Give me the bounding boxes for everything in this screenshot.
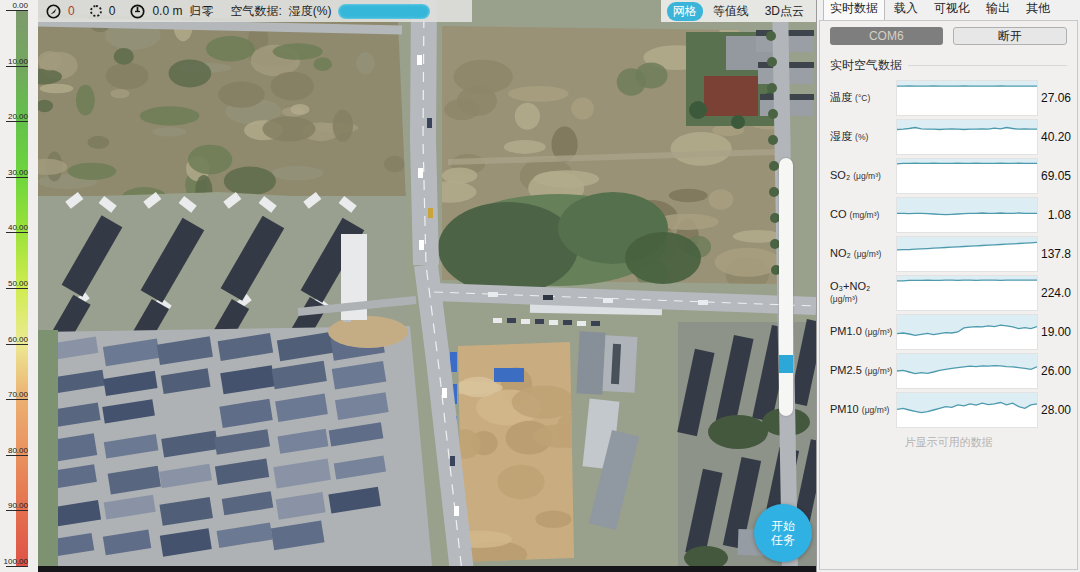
group-title: 实时空气数据: [830, 57, 902, 74]
sensor-row: O₃+NO₂ (μg/m³) 224.0: [830, 273, 1073, 312]
disconnect-button[interactable]: 断开: [953, 27, 1068, 45]
colorbar-tick: [6, 177, 28, 178]
sensor-label: NO₂ (μg/m³): [830, 247, 896, 260]
sensor-value: 1.08: [1038, 208, 1073, 222]
map-mode-tab-0[interactable]: 网格: [667, 2, 703, 21]
air-data-label: 空气数据:: [230, 3, 281, 20]
sensor-label: PM10 (μg/m³): [830, 403, 896, 416]
colorbar-tick: [6, 399, 28, 400]
com-port-button[interactable]: COM6: [830, 27, 943, 45]
sensor-label: O₃+NO₂ (μg/m³): [830, 280, 896, 305]
sensor-sparkline: [896, 158, 1038, 194]
colorbar-tick-label: 100.00: [0, 557, 28, 566]
colorbar-tick: [6, 121, 28, 122]
sensor-sparkline: [896, 197, 1038, 233]
zero-button[interactable]: 归零: [189, 3, 213, 20]
sensor-value: 19.00: [1038, 325, 1073, 339]
colorbar-tick: [6, 288, 28, 289]
sensor-row: PM10 (μg/m³) 28.00: [830, 390, 1073, 429]
sensor-value: 27.06: [1038, 91, 1073, 105]
sensor-label: PM2.5 (μg/m³): [830, 364, 896, 377]
sensor-label: 温度 (°C): [830, 91, 896, 104]
sensor-sparkline: [896, 314, 1038, 350]
sensor-value: 26.00: [1038, 364, 1073, 378]
colorbar-tick: [6, 566, 28, 567]
colorbar-tick-label: 60.00: [0, 335, 28, 344]
colorbar-tick-label: 80.00: [0, 446, 28, 455]
sensor-sparkline: [896, 80, 1038, 116]
start-task-line1: 开始: [771, 519, 795, 533]
air-data-selector[interactable]: [338, 4, 430, 19]
sensor-value: 69.05: [1038, 169, 1073, 183]
sensor-row: PM2.5 (μg/m³) 26.00: [830, 351, 1073, 390]
compass-value: 0: [68, 4, 75, 18]
altitude-slider[interactable]: [779, 158, 793, 416]
colorbar-tick-label: 10.00: [0, 57, 28, 66]
group-divider: [908, 65, 1067, 66]
colorbar-tick-label: 20.00: [0, 112, 28, 121]
altitude-gauge-icon: [130, 4, 145, 19]
map-mode-tab-1[interactable]: 等值线: [707, 2, 755, 21]
satellite-imagery: [38, 0, 816, 572]
group-header: 实时空气数据: [820, 49, 1077, 76]
colorbar-tick-label: 40.00: [0, 223, 28, 232]
colorbar-tick: [6, 10, 28, 11]
sensor-row: SO₂ (μg/m³) 69.05: [830, 156, 1073, 195]
sensor-label: 湿度 (%): [830, 130, 896, 143]
colorbar-tick-label: 30.00: [0, 168, 28, 177]
colorbar-tick-label: 50.00: [0, 279, 28, 288]
altitude-value: 0.0 m: [152, 4, 182, 18]
sensor-sparkline: [896, 119, 1038, 155]
panel-tab-3[interactable]: 输出: [979, 0, 1017, 20]
map-mode-tab-2[interactable]: 3D点云: [759, 2, 810, 21]
start-task-button[interactable]: 开始 任务: [754, 504, 812, 562]
sensor-sparkline: [896, 392, 1038, 428]
map-mode-tabs: 网格等值线3D点云: [661, 0, 816, 22]
right-panel: 实时数据载入可视化输出其他 COM6 断开 实时空气数据 温度 (°C) 27.…: [816, 0, 1080, 572]
panel-content: COM6 断开 实时空气数据 温度 (°C) 27.06 湿度 (%) 40.2…: [819, 20, 1078, 570]
panel-tabs: 实时数据载入可视化输出其他: [817, 0, 1080, 20]
panel-tab-4[interactable]: 其他: [1019, 0, 1057, 20]
sensor-row: PM1.0 (μg/m³) 19.00: [830, 312, 1073, 351]
sensor-value: 40.20: [1038, 130, 1073, 144]
sensor-label: PM1.0 (μg/m³): [830, 325, 896, 338]
sensor-row: 温度 (°C) 27.06: [830, 78, 1073, 117]
sensor-row: NO₂ (μg/m³) 137.8: [830, 234, 1073, 273]
colorbar-tick: [6, 455, 28, 456]
compass-icon: [46, 4, 61, 19]
panel-footer-note: 片显示可用的数据: [820, 435, 1077, 450]
colorbar-tick: [6, 344, 28, 345]
colorbar-tick-label: 70.00: [0, 390, 28, 399]
colorbar: 0.0010.0020.0030.0040.0050.0060.0070.008…: [0, 0, 38, 572]
sensor-value: 137.8: [1038, 247, 1073, 261]
sensor-row: 湿度 (%) 40.20: [830, 117, 1073, 156]
sensor-sparkline: [896, 353, 1038, 389]
satellite-dots-icon: [90, 5, 102, 17]
colorbar-tick-label: 90.00: [0, 501, 28, 510]
sensor-row: CO (mg/m³) 1.08: [830, 195, 1073, 234]
map-canvas[interactable]: 0 0 0.0 m 归零 空气数据: 湿度(%) 网格等值线3D点云 开始 任务: [38, 0, 816, 572]
panel-tab-2[interactable]: 可视化: [927, 0, 977, 20]
panel-tab-0[interactable]: 实时数据: [823, 0, 885, 20]
sensor-value: 224.0: [1038, 286, 1073, 300]
start-task-line2: 任务: [771, 533, 795, 547]
sensor-sparkline: [896, 275, 1038, 311]
sensor-value: 28.00: [1038, 403, 1073, 417]
air-data-field[interactable]: 湿度(%): [289, 3, 332, 20]
app-window: 0.0010.0020.0030.0040.0050.0060.0070.008…: [0, 0, 1080, 572]
colorbar-tick: [6, 510, 28, 511]
colorbar-tick: [6, 66, 28, 67]
sensor-rows: 温度 (°C) 27.06 湿度 (%) 40.20 SO₂ (μg/m³) 6…: [820, 76, 1077, 429]
colorbar-tick-label: 0.00: [0, 1, 28, 10]
sensor-label: SO₂ (μg/m³): [830, 169, 896, 182]
panel-tab-1[interactable]: 载入: [887, 0, 925, 20]
map-toolbar: 0 0 0.0 m 归零 空气数据: 湿度(%): [38, 0, 472, 22]
colorbar-tick: [6, 232, 28, 233]
points-value: 0: [109, 4, 116, 18]
sensor-label: CO (mg/m³): [830, 208, 896, 221]
altitude-slider-handle[interactable]: [779, 355, 793, 373]
sensor-sparkline: [896, 236, 1038, 272]
